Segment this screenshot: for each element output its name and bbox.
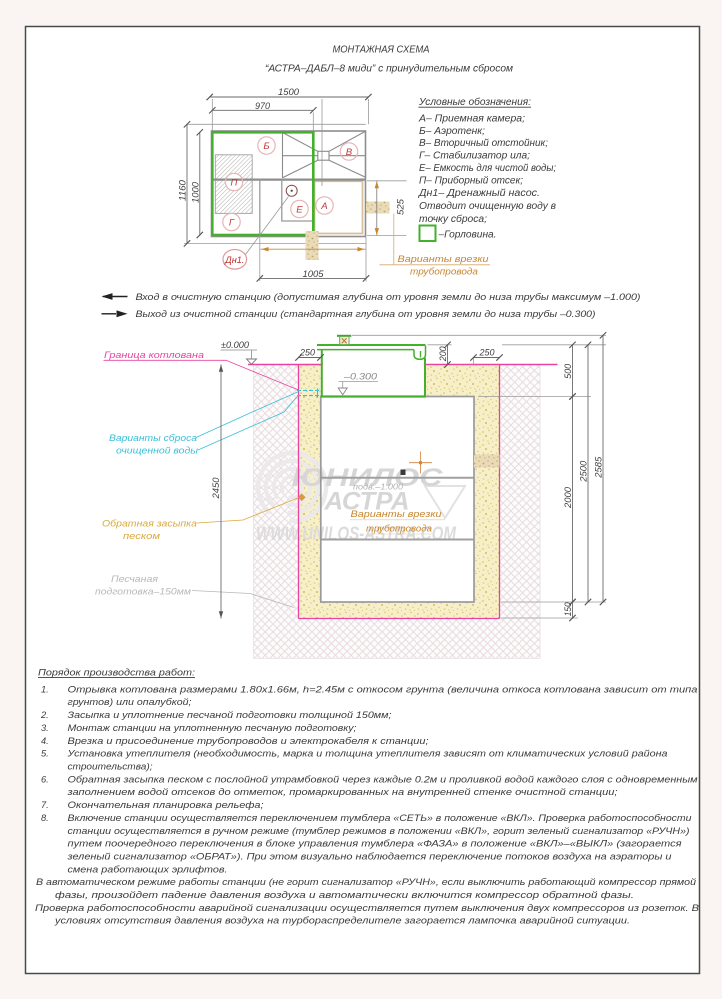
svg-text:Е: Е <box>296 204 303 215</box>
svg-text:В: В <box>346 147 353 158</box>
svg-text:–Горловина.: –Горловина. <box>437 230 496 241</box>
svg-text:Включение станции осуществляет: Включение станции осуществляется переклю… <box>68 813 692 823</box>
svg-text:заполнением водой отсеков до о: заполнением водой отсеков до отметок, пр… <box>66 787 618 797</box>
svg-text:Монтаж станции на уплотненную: Монтаж станции на уплотненную песчаную п… <box>68 723 357 733</box>
svg-text:2.: 2. <box>40 710 49 720</box>
svg-text:смена работающих эрлифтов.: смена работающих эрлифтов. <box>68 864 228 874</box>
svg-text:Обратная засыпка песком с посл: Обратная засыпка песком с послойной утра… <box>68 774 699 784</box>
svg-text:1.: 1. <box>41 684 49 694</box>
svg-text:–0.300: –0.300 <box>343 372 377 382</box>
svg-text:Отрывка котлована размерами 1.: Отрывка котлована размерами 1.80х1.66м, … <box>68 684 698 694</box>
svg-text:Б– Аэротенк;: Б– Аэротенк; <box>419 126 485 137</box>
svg-text:Вход в очистную станцию (допус: Вход в очистную станцию (допустимая глуб… <box>136 292 641 302</box>
svg-text:Б: Б <box>263 141 269 152</box>
svg-text:П: П <box>231 177 238 188</box>
svg-text:Г: Г <box>229 217 235 228</box>
svg-text:150: 150 <box>563 602 573 616</box>
svg-text:А: А <box>320 201 327 212</box>
svg-text:Отводит очищенную воду в: Отводит очищенную воду в <box>419 201 556 212</box>
svg-text:Проверка работоспособности ава: Проверка работоспособности аварийной сиг… <box>35 903 699 913</box>
svg-text:1005: 1005 <box>303 269 325 279</box>
svg-text:Г– Стабилизатор ила;: Г– Стабилизатор ила; <box>419 150 530 161</box>
svg-text:МОНТАЖНАЯ СХЕМА: МОНТАЖНАЯ СХЕМА <box>333 45 430 56</box>
svg-text:Окончательная планировка релье: Окончательная планировка рельефа; <box>68 800 264 810</box>
svg-text:1500: 1500 <box>278 87 299 97</box>
svg-text:точку сброса;: точку сброса; <box>419 214 487 225</box>
svg-text:5.: 5. <box>41 749 49 759</box>
svg-text:Варианты сброса: Варианты сброса <box>109 433 197 444</box>
svg-text:8.: 8. <box>41 813 49 823</box>
svg-text:250: 250 <box>299 347 315 357</box>
svg-text:7.: 7. <box>41 800 49 810</box>
svg-text:зеленый сигнализатор «ОБРАТ»).: зеленый сигнализатор «ОБРАТ»). При этом … <box>66 852 671 862</box>
svg-text:Установка утеплителя (необходи: Установка утеплителя (необходимость, мар… <box>66 749 667 759</box>
svg-text:Порядок производства работ:: Порядок производства работ: <box>38 667 195 677</box>
svg-text:трубопровода: трубопровода <box>410 267 478 278</box>
svg-text:В– Вторичный отстойник;: В– Вторичный отстойник; <box>419 138 548 149</box>
svg-text:условиях отсутствия давления: условиях отсутствия давления воздуха на … <box>54 916 630 926</box>
svg-text:250: 250 <box>479 347 495 357</box>
svg-text:станции осуществляется в ручно: станции осуществляется в ручном режиме (… <box>68 826 690 836</box>
svg-text:Засыпка и уплотнение песчаной: Засыпка и уплотнение песчаной подготовки… <box>68 710 392 720</box>
svg-text:Е– Емкость для чистой воды;: Е– Емкость для чистой воды; <box>419 163 556 174</box>
svg-text:подготовка–150мм: подготовка–150мм <box>95 587 191 598</box>
svg-text:“АСТРА–ДАБЛ–8 миди” с принудит: “АСТРА–ДАБЛ–8 миди” с принудительным сбр… <box>265 63 513 75</box>
svg-text:±0.000: ±0.000 <box>221 340 249 350</box>
svg-text:грунтов) или опалубкой;: грунтов) или опалубкой; <box>68 697 192 707</box>
svg-text:Варианты врезки: Варианты врезки <box>351 509 443 520</box>
svg-text:трубопровода: трубопровода <box>366 524 432 535</box>
svg-text:2450: 2450 <box>211 478 221 500</box>
svg-text:подв.–1.000: подв.–1.000 <box>353 483 403 492</box>
svg-text:А– Приемная камера;: А– Приемная камера; <box>418 114 525 125</box>
svg-text:строительства);: строительства); <box>68 762 153 772</box>
svg-text:525: 525 <box>395 198 405 215</box>
svg-text:Песчаная: Песчаная <box>111 574 158 585</box>
svg-text:1160: 1160 <box>177 180 187 201</box>
svg-text:очищенной воды: очищенной воды <box>116 446 198 457</box>
svg-text:2000: 2000 <box>563 487 573 509</box>
svg-text:Условные обозначения:: Условные обозначения: <box>418 97 531 108</box>
svg-text:6.: 6. <box>41 774 49 784</box>
svg-text:200: 200 <box>438 346 448 362</box>
svg-text:500: 500 <box>563 364 573 379</box>
svg-text:Дн1– Дренажный насос.: Дн1– Дренажный насос. <box>418 188 540 199</box>
svg-text:2585: 2585 <box>593 456 603 479</box>
svg-text:Граница котлована: Граница котлована <box>104 350 204 361</box>
svg-text:Врезка и присоединение трубопр: Врезка и присоединение трубопроводов и э… <box>68 736 429 746</box>
svg-text:В автоматическом режиме работы: В автоматическом режиме работы станции (… <box>36 877 696 887</box>
svg-text:Обратная засыпка: Обратная засыпка <box>102 519 197 530</box>
svg-text:фазы, произойдет падение давле: фазы, произойдет падение давления воздух… <box>55 890 634 900</box>
svg-text:4.: 4. <box>41 736 49 746</box>
svg-text:970: 970 <box>255 101 270 111</box>
svg-text:2500: 2500 <box>578 461 588 483</box>
svg-text:3.: 3. <box>41 723 49 733</box>
svg-text:Дн1.: Дн1. <box>224 255 244 265</box>
svg-text:Выход из очистной станции (ста: Выход из очистной станции (стандартная г… <box>136 309 596 319</box>
svg-text:песком: песком <box>123 531 160 542</box>
svg-text:1000: 1000 <box>190 182 200 203</box>
svg-text:путем поочередного переключени: путем поочередного переключения в блоке … <box>68 839 682 849</box>
svg-text:Варианты врезки: Варианты врезки <box>398 254 490 265</box>
svg-text:П– Приборный отсек;: П– Приборный отсек; <box>419 175 523 186</box>
